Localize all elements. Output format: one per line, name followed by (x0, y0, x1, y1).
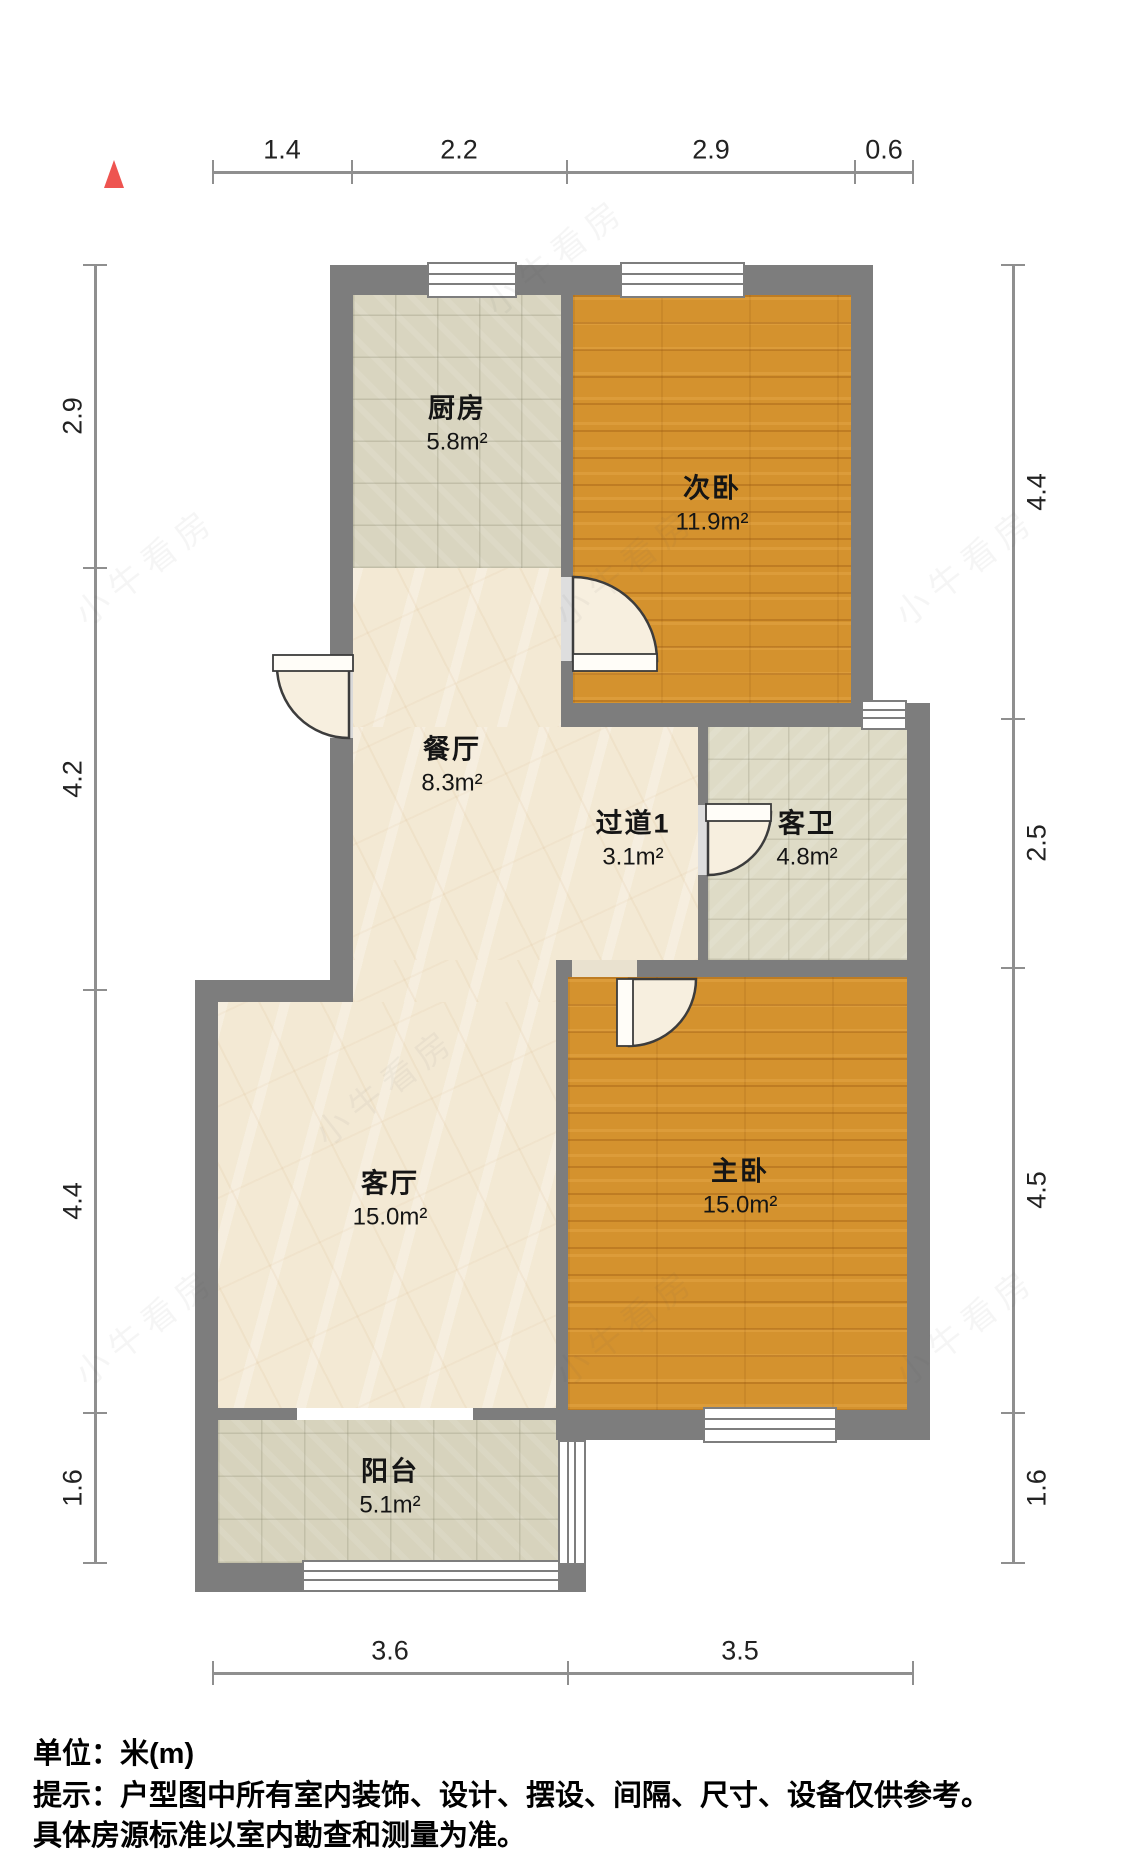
dim-tick-right-1 (1001, 718, 1025, 721)
dim-tick-left-4 (83, 1562, 107, 1565)
doors-layer (0, 0, 1125, 1860)
room-label-dining-room: 餐厅8.3m² (421, 732, 482, 801)
room-area-balcony: 5.1m² (359, 1490, 420, 1522)
room-name-second-bedroom: 次卧 (676, 471, 749, 507)
dim-tick-top-1 (351, 160, 354, 184)
dim-tick-right-3 (1001, 1412, 1025, 1415)
dim-tick-top-0 (212, 160, 215, 184)
dim-label-right-3: 1.6 (1022, 1469, 1053, 1507)
dim-label-left-0: 2.9 (58, 397, 89, 435)
dim-tick-top-3 (854, 160, 857, 184)
room-area-second-bedroom: 11.9m² (676, 507, 749, 539)
room-name-kitchen: 厨房 (426, 391, 487, 427)
floorplan-canvas: 厨房5.8m²次卧11.9m²餐厅8.3m²过道13.1m²客卫4.8m²客厅1… (0, 0, 1125, 1860)
room-area-living-room: 15.0m² (353, 1202, 428, 1234)
footer-tip-line2: 具体房源标准以室内勘查和测量为准。 (33, 1812, 526, 1854)
room-label-master-bedroom: 主卧15.0m² (703, 1154, 778, 1223)
dim-tick-top-2 (566, 160, 569, 184)
dim-tick-bottom-0 (212, 1661, 215, 1685)
footer-tip-line1: 提示：户型图中所有室内装饰、设计、摆设、间隔、尺寸、设备仅供参考。 (33, 1772, 990, 1814)
dim-label-left-3: 1.6 (58, 1469, 89, 1507)
dim-label-top-1: 2.2 (440, 135, 478, 166)
room-label-kitchen: 厨房5.8m² (426, 391, 487, 460)
entry-door-swing (277, 666, 349, 738)
bathroom-door-leaf (706, 804, 771, 821)
dim-label-bottom-1: 3.5 (721, 1636, 759, 1667)
dim-tick-left-3 (83, 1412, 107, 1415)
master-door-swing (629, 979, 696, 1046)
room-name-dining-room: 餐厅 (421, 732, 482, 768)
dim-label-top-0: 1.4 (263, 135, 301, 166)
room-area-kitchen: 5.8m² (426, 427, 487, 459)
room-name-hallway: 过道1 (595, 806, 670, 842)
room-label-second-bedroom: 次卧11.9m² (676, 471, 749, 540)
dim-tick-right-0 (1001, 264, 1025, 267)
dim-line-right (1012, 265, 1015, 1563)
room-area-hallway: 3.1m² (595, 842, 670, 874)
room-area-master-bedroom: 15.0m² (703, 1190, 778, 1222)
dim-label-right-2: 4.5 (1022, 1171, 1053, 1209)
dim-label-left-1: 4.2 (58, 760, 89, 798)
dim-label-right-1: 2.5 (1022, 824, 1053, 862)
dim-tick-bottom-2 (912, 1661, 915, 1685)
dim-tick-bottom-1 (567, 1661, 570, 1685)
dim-tick-left-1 (83, 567, 107, 570)
footer-unit-line: 单位：米(m) (33, 1730, 194, 1772)
dim-line-top (213, 171, 913, 174)
dim-label-left-2: 4.4 (58, 1182, 89, 1220)
master-door-leaf (617, 979, 633, 1046)
entry-door-leaf (273, 655, 353, 671)
bedroom2-door-leaf (573, 654, 657, 671)
dim-tick-top-4 (912, 160, 915, 184)
room-name-living-room: 客厅 (353, 1166, 428, 1202)
dim-tick-left-2 (83, 989, 107, 992)
dim-label-top-3: 0.6 (865, 135, 903, 166)
room-area-guest-bathroom: 4.8m² (776, 842, 837, 874)
dim-tick-right-4 (1001, 1562, 1025, 1565)
bedroom2-door-swing (573, 577, 657, 661)
dim-tick-right-2 (1001, 967, 1025, 970)
room-name-master-bedroom: 主卧 (703, 1154, 778, 1190)
dim-label-right-0: 4.4 (1022, 473, 1053, 511)
dim-line-left (94, 265, 97, 1563)
dim-tick-left-0 (83, 264, 107, 267)
room-area-dining-room: 8.3m² (421, 768, 482, 800)
dim-label-top-2: 2.9 (692, 135, 730, 166)
room-label-guest-bathroom: 客卫4.8m² (776, 806, 837, 875)
room-label-balcony: 阳台5.1m² (359, 1454, 420, 1523)
room-name-guest-bathroom: 客卫 (776, 806, 837, 842)
dim-label-bottom-0: 3.6 (371, 1636, 409, 1667)
dim-line-bottom (213, 1672, 913, 1675)
room-name-balcony: 阳台 (359, 1454, 420, 1490)
room-label-hallway: 过道13.1m² (595, 806, 670, 875)
room-label-living-room: 客厅15.0m² (353, 1166, 428, 1235)
